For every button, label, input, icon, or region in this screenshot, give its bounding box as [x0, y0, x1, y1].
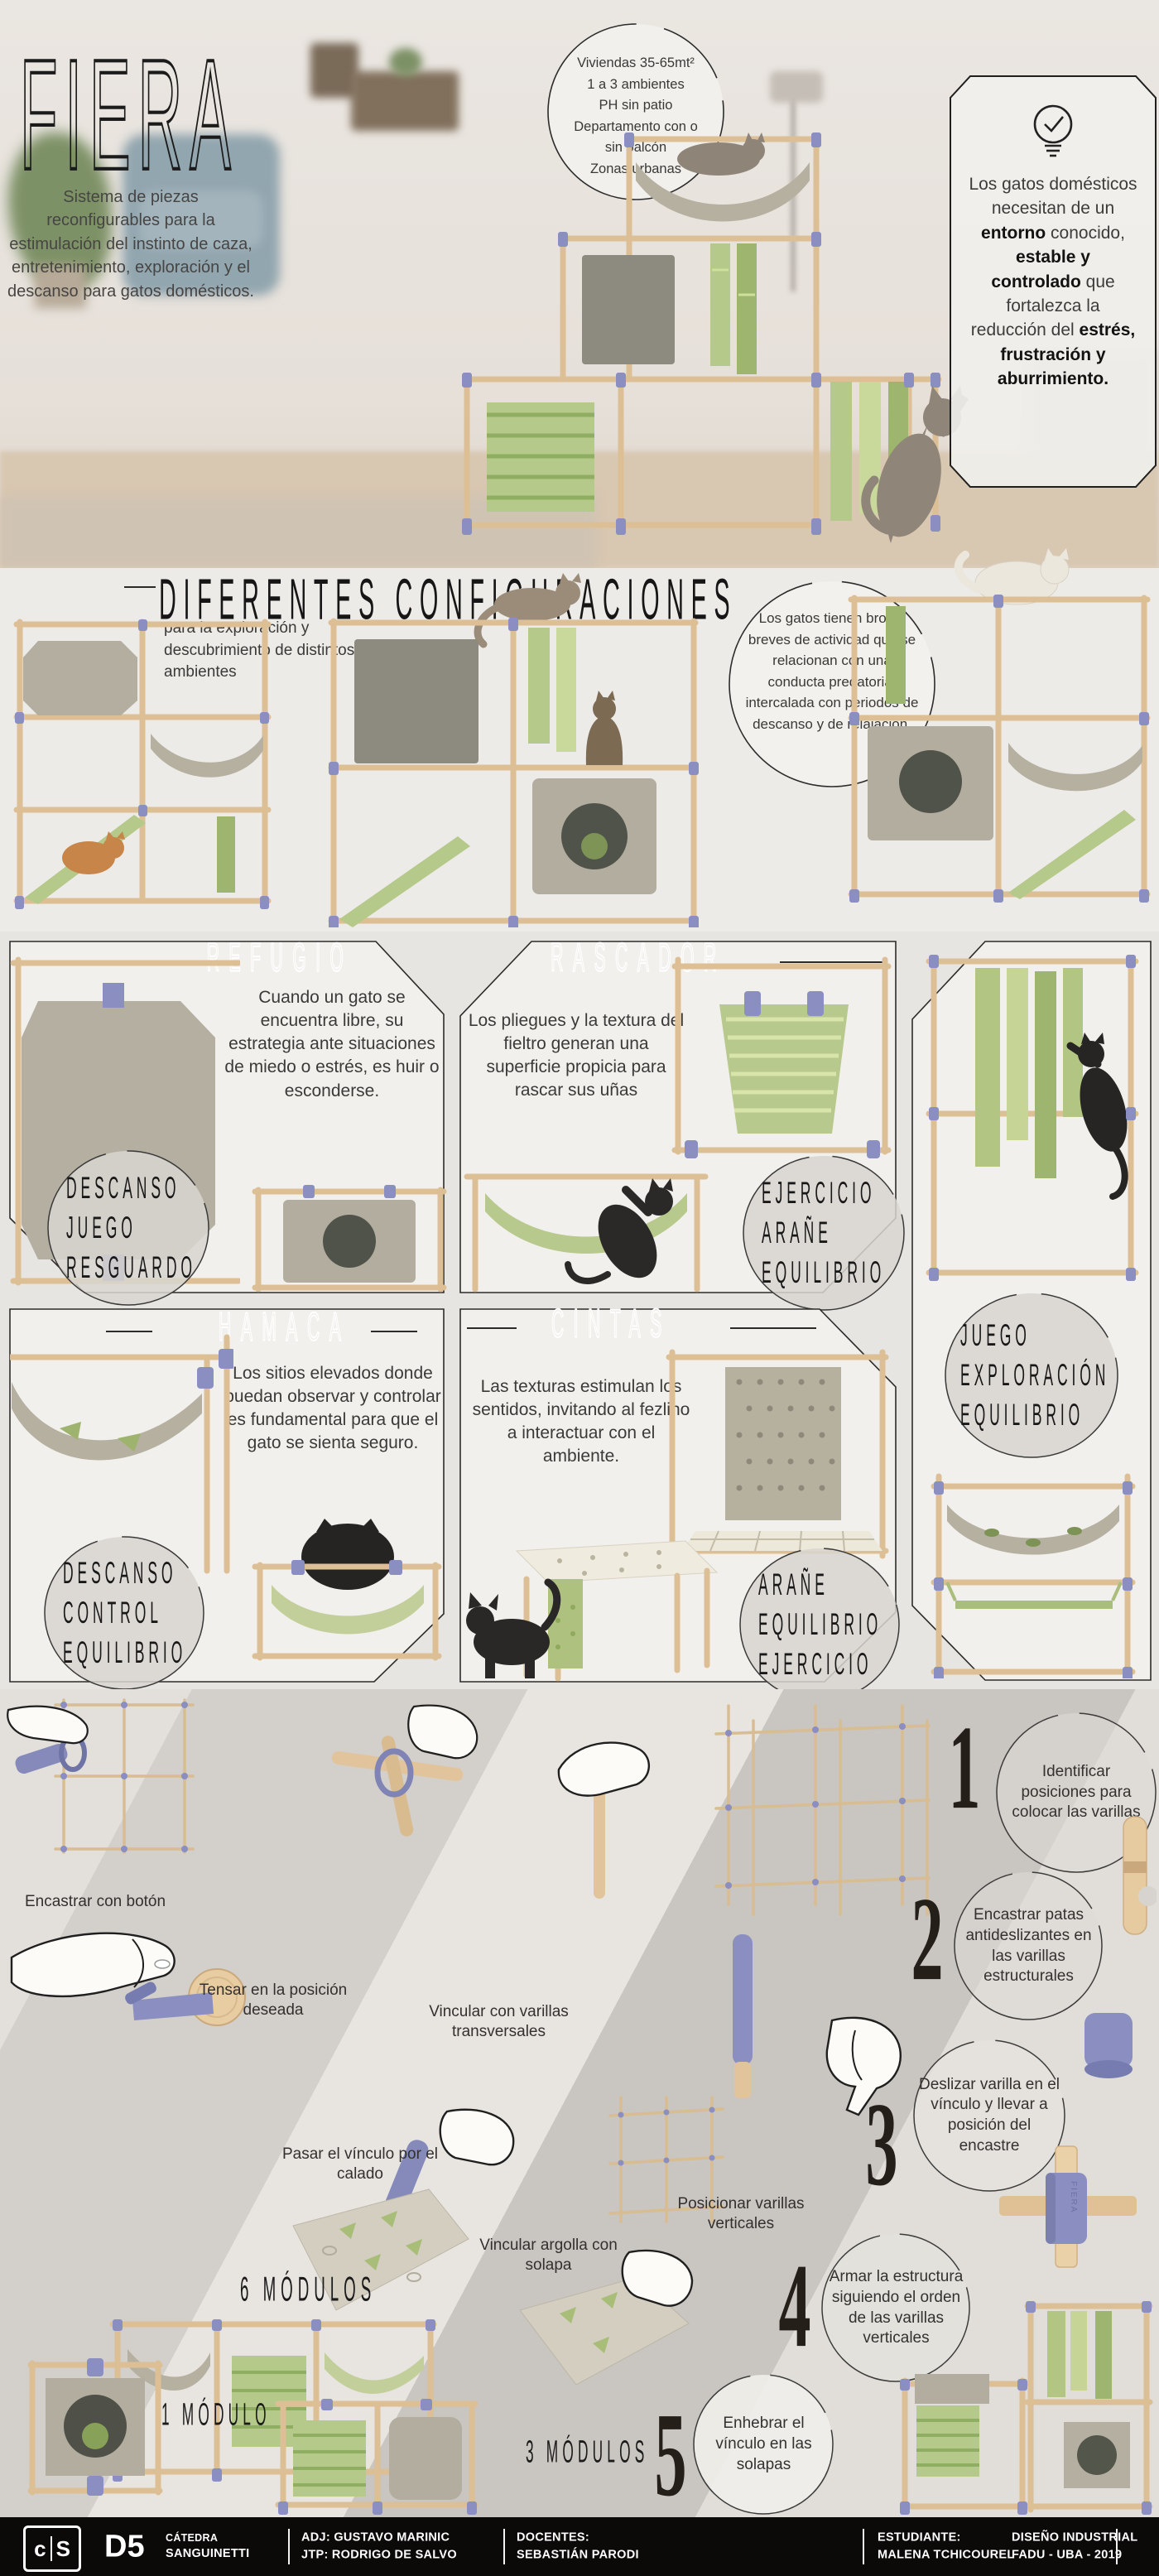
stamp-line: DESCANSO: [66, 1170, 180, 1206]
footer-code: D5: [104, 2523, 145, 2570]
step-circle: Encastrar patas antideslizantes en las v…: [952, 1870, 1105, 2023]
panel-title-text: HAMACA: [219, 1306, 350, 1351]
stamp-line: JUEGO: [960, 1317, 1031, 1354]
features-section: REFUGIO Cuando un gato se encuentra libr…: [0, 932, 1159, 1689]
footer-institucion-block: DISEÑO INDUSTRIAL FADU - UBA - 2019: [1012, 2529, 1137, 2565]
step-number: 1: [949, 1698, 981, 1837]
bubble-line: Viviendas 35-65mt²: [564, 53, 708, 75]
fiera-connector-illustration: FIERA: [998, 2145, 1138, 2269]
panel-rascador: RASCADOR Los pliegues y la textura del f…: [457, 938, 899, 1296]
stamp-line: EQUILIBRIO: [762, 1254, 885, 1291]
final-structures-illustration: [898, 2298, 1155, 2517]
stamp-line: EQUILIBRIO: [960, 1397, 1084, 1433]
refugio-cube: [250, 1178, 447, 1293]
tip-text: Los gatos domésticos necesitan de un ent…: [969, 172, 1137, 392]
footer-institucion-name: FADU - UBA - 2019: [1012, 2547, 1137, 2565]
footer: c S D5 CÁTEDRA SANGUINETTI ADJ: GUSTAVO …: [0, 2517, 1159, 2576]
title-dash: [730, 1327, 816, 1329]
label-pasar-vinculo: Pasar el vínculo por el calado: [273, 2145, 447, 2185]
stamp-cintas: ARAÑE EQUILIBRIO EJERCICIO: [735, 1544, 904, 1705]
brand-title-text: FIERA: [20, 25, 238, 205]
label-1-modulo-text: 1 MÓDULO: [161, 2397, 271, 2434]
configurations-section: DIFERENTES CONFIGURACIONES para la explo…: [0, 568, 1159, 932]
stamp-line: CONTROL: [63, 1595, 162, 1631]
step-number: 3: [866, 2075, 898, 2213]
footer-divider: [288, 2529, 290, 2564]
bubble-line: 1 a 3 ambientes: [564, 75, 708, 96]
stamp-rascador: EJERCICIO ARAÑE EQUILIBRIO: [738, 1152, 909, 1314]
label-3-modulos-text: 3 MÓDULOS: [526, 2434, 648, 2472]
label-encastrar-con-boton: Encastrar con botón: [25, 1892, 215, 1912]
panel-title: CINTAS: [487, 1311, 735, 1339]
lamp-shade: [770, 71, 823, 103]
connector-graphic: [998, 2145, 1138, 2269]
stamp-line: ARAÑE: [762, 1215, 832, 1251]
footer-catedra-name: SANGUINETTI: [166, 2545, 249, 2564]
label-6-modulos: 6 MÓDULOS: [240, 2269, 389, 2294]
stamp-line: EQUILIBRIO: [758, 1606, 882, 1643]
side-hammock-structure: [926, 1468, 1139, 1678]
footer-carrera-name: DISEÑO INDUSTRIAL: [1012, 2529, 1137, 2547]
footer-docente-name: SEBASTIÁN PARODI: [517, 2547, 639, 2565]
step-5: 5 Enhebrar el vínculo en las solapas: [650, 2347, 844, 2517]
one-module-structure: [21, 2352, 170, 2501]
logo-divider: [50, 2536, 52, 2561]
footer-catedra-label: CÁTEDRA: [166, 2530, 249, 2545]
tip-segment-bold: entorno: [981, 224, 1046, 243]
three-module-structure: [273, 2389, 480, 2517]
panel-refugio: REFUGIO Cuando un gato se encuentra libr…: [7, 938, 447, 1296]
stamp-line: DESCANSO: [63, 1555, 176, 1591]
footer-divider: [503, 2529, 505, 2564]
stamp-text: JUEGO EXPLORACIÓN EQUILIBRIO: [940, 1289, 1123, 1461]
footer-jtp: JTP: RODRIGO DE SALVO: [301, 2547, 457, 2565]
configuration-structure-middle: [321, 556, 706, 927]
stamp-line: EQUILIBRIO: [63, 1635, 186, 1671]
stamp-text: EJERCICIO ARAÑE EQUILIBRIO: [738, 1152, 909, 1314]
footer-adjuntos: ADJ: GUSTAVO MARINIC JTP: RODRIGO DE SAL…: [301, 2529, 457, 2565]
tip-segment: conocido,: [1046, 224, 1125, 243]
purple-cap-illustration: [1076, 2008, 1142, 2087]
stamp-refugio: DESCANSO JUEGO RESGUARDO: [43, 1147, 214, 1309]
stamp-line: JUEGO: [66, 1210, 137, 1246]
notched-rod-illustration: [1113, 1813, 1157, 1938]
antislip-foot-illustration: [716, 1929, 770, 2103]
hand-rod-illustration: [542, 1735, 658, 1900]
hero-intro: Sistema de piezas reconfigurables para l…: [7, 185, 255, 303]
configuration-structure-left: [10, 609, 275, 912]
footer-docentes-label: DOCENTES:: [517, 2529, 639, 2547]
panel-text: Cuando un gato se encuentra libre, su es…: [224, 986, 440, 1103]
stamp-text: DESCANSO JUEGO RESGUARDO: [43, 1147, 214, 1309]
footer-estudiante: ESTUDIANTE: MALENA TCHICOUREL: [878, 2529, 1015, 2565]
rascador-cat-scene: [462, 1142, 710, 1293]
stamp-text: ARAÑE EQUILIBRIO EJERCICIO: [735, 1544, 904, 1705]
stamp-line: EXPLORACIÓN: [960, 1357, 1109, 1394]
logo-letter-s: S: [56, 2536, 70, 2562]
label-3-modulos: 3 MÓDULOS: [526, 2434, 666, 2458]
label-tensar: Tensar en la posición deseada: [178, 1981, 368, 2021]
assembly-section: Encastrar con botón Tensar en la posició…: [0, 1689, 1159, 2517]
connector-brand-text: FIERA: [1069, 2181, 1078, 2213]
catedra-logo: c S: [23, 2525, 81, 2572]
stamp-line: EJERCICIO: [758, 1646, 872, 1683]
panel-title-text: CINTAS: [551, 1302, 671, 1347]
cintas-cat-scene: [460, 1528, 727, 1682]
cross-ring-hand-illustration: [315, 1702, 480, 1842]
side-ribbons-structure: [917, 948, 1147, 1286]
panel-side: JUEGO EXPLORACIÓN EQUILIBRIO: [909, 938, 1154, 1685]
tip-box: Los gatos domésticos necesitan de un ent…: [949, 75, 1157, 489]
configuration-structure-right: [843, 548, 1156, 904]
step-text: Enhebrar el vínculo en las solapas: [700, 2381, 828, 2509]
panel-cintas: CINTAS Las texturas estimulan los sentid…: [457, 1306, 899, 1685]
step-circle: Enhebrar el vínculo en las solapas: [691, 2372, 836, 2517]
wall-shelf: [351, 71, 459, 131]
footer-estudiante-name: MALENA TCHICOUREL: [878, 2547, 1015, 2565]
tip-segment: Los gatos domésticos necesitan de un: [969, 175, 1137, 218]
panel-text: Los pliegues y la textura del fieltro ge…: [465, 1009, 687, 1103]
stamp-side: JUEGO EXPLORACIÓN EQUILIBRIO: [940, 1289, 1123, 1461]
stamp-line: RESGUARDO: [66, 1249, 196, 1286]
clip-hand-illustration: [0, 1702, 141, 1809]
footer-docentes: DOCENTES: SEBASTIÁN PARODI: [517, 2529, 639, 2565]
footer-catedra: CÁTEDRA SANGUINETTI: [166, 2530, 249, 2564]
stamp-line: EJERCICIO: [762, 1175, 875, 1211]
panel-hamaca: HAMACA Los sitios elevados donde puedan …: [7, 1306, 447, 1685]
lightbulb-check-icon: [1028, 103, 1078, 166]
label-vincular-varillas: Vincular con varillas transversales: [397, 2002, 600, 2043]
step-text: Encastrar patas antideslizantes en las v…: [960, 1878, 1097, 2015]
step-2: 2 Encastrar patas antideslizantes en las…: [907, 1870, 1109, 2027]
step-number: 2: [911, 1870, 944, 2008]
title-dash: [371, 1331, 417, 1332]
shelf-plant: [389, 48, 422, 76]
panel-text: Los sitios elevados donde puedan observa…: [222, 1362, 444, 1456]
stamp-text: DESCANSO CONTROL EQUILIBRIO: [40, 1533, 209, 1693]
title-dash: [124, 586, 156, 588]
hero-section: FIERA Sistema de piezas reconfigurables …: [0, 0, 1159, 568]
stamp-hamaca: DESCANSO CONTROL EQUILIBRIO: [40, 1533, 209, 1693]
rascador-structure: [668, 953, 897, 1158]
footer-estudiante-label: ESTUDIANTE:: [878, 2529, 1015, 2547]
bubble-line: PH sin patio: [564, 95, 708, 117]
brand-title: FIERA: [20, 25, 277, 174]
stamp-line: ARAÑE: [758, 1567, 829, 1603]
footer-adj: ADJ: GUSTAVO MARINIC: [301, 2529, 457, 2547]
tip-segment-bold: estable y controlado: [991, 248, 1090, 291]
logo-letter-c: c: [34, 2536, 46, 2562]
poster: FIERA Sistema de piezas reconfigurables …: [0, 0, 1159, 2576]
hamaca-cat-cube: [248, 1511, 445, 1668]
step-number: 5: [655, 2386, 687, 2517]
label-6-modulos-text: 6 MÓDULOS: [240, 2269, 376, 2310]
footer-divider: [863, 2529, 864, 2564]
